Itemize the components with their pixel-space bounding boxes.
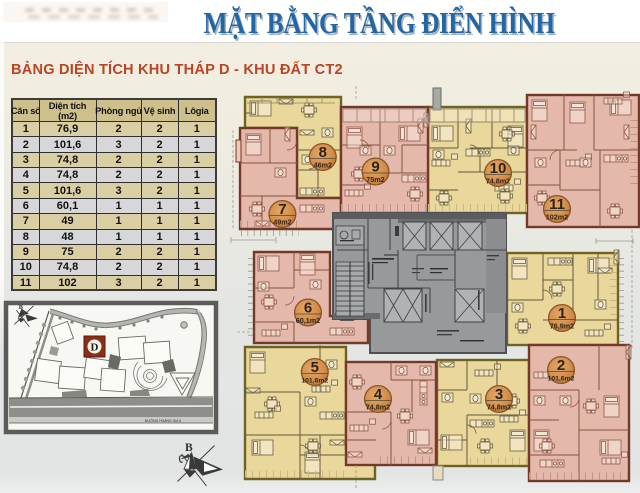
svg-text:11: 11 <box>549 196 565 213</box>
svg-text:6: 6 <box>304 300 312 317</box>
svg-text:1: 1 <box>558 305 566 322</box>
svg-text:74,8m2: 74,8m2 <box>486 177 510 186</box>
svg-text:76,9m2: 76,9m2 <box>550 322 574 331</box>
svg-text:75m2: 75m2 <box>366 175 384 184</box>
svg-text:10: 10 <box>490 160 507 177</box>
svg-text:ĐƯỜNG HOÀNG GIA 5: ĐƯỜNG HOÀNG GIA 5 <box>145 418 181 423</box>
svg-text:101,6m2: 101,6m2 <box>301 378 328 385</box>
svg-text:60,1m2: 60,1m2 <box>296 316 320 325</box>
svg-text:7: 7 <box>278 201 286 218</box>
svg-text:101,6m2: 101,6m2 <box>548 376 575 383</box>
svg-text:3: 3 <box>495 386 503 403</box>
svg-text:74,8m2: 74,8m2 <box>487 403 511 412</box>
svg-text:49m2: 49m2 <box>273 218 291 227</box>
svg-text:8: 8 <box>319 144 327 161</box>
svg-text:46m2: 46m2 <box>314 161 332 170</box>
svg-text:5: 5 <box>311 359 319 376</box>
svg-text:4: 4 <box>374 386 383 403</box>
svg-text:74,8m2: 74,8m2 <box>366 403 390 412</box>
svg-text:102m2: 102m2 <box>546 213 568 222</box>
svg-text:D: D <box>91 342 99 354</box>
svg-text:2: 2 <box>557 357 565 374</box>
svg-text:9: 9 <box>371 159 379 176</box>
